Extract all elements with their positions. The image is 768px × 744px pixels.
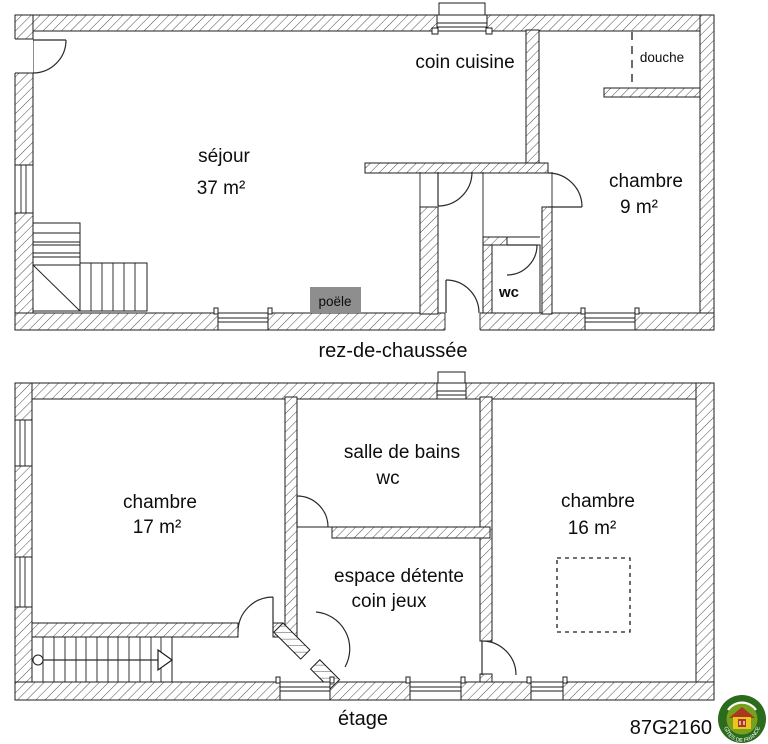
room-area-chambre16: 16 m² (568, 518, 617, 539)
gf-top-wall (15, 15, 714, 31)
gites-de-france-logo: GÎTES DE FRANCE (718, 695, 766, 744)
floorplan-drawing: poële séjour 37 m² coin cuisine chambre … (0, 0, 768, 744)
gf-window-left (15, 165, 33, 213)
floorplan-page: poële séjour 37 m² coin cuisine chambre … (0, 0, 768, 744)
poele-label: poële (318, 294, 351, 309)
gf-stairs (33, 223, 147, 311)
caption-upper-floor: étage (338, 708, 388, 730)
room-area-chambre17: 17 m² (133, 517, 182, 538)
gf-door-chambre9 (548, 173, 582, 207)
room-label-chambre17: chambre (123, 492, 197, 513)
uf-window-left-1 (15, 420, 32, 466)
gf-window-bottom-chambre (581, 308, 639, 330)
uf-door-salle-de-bains (297, 496, 332, 527)
uf-window-bottom-3 (527, 677, 567, 700)
ground-floor-plan: poële séjour 37 m² coin cuisine chambre … (14, 3, 714, 362)
uf-door-chambre16 (482, 641, 516, 675)
gf-door-left-entry (33, 40, 66, 73)
gf-wall-under-cuisine (365, 163, 548, 173)
room-label-salle-de-bains: salle de bains (344, 442, 460, 463)
room-area-sejour: 37 m² (197, 178, 246, 199)
uf-wall-sdb-bottom (332, 527, 490, 538)
gf-wall-hall-chambre (542, 207, 552, 314)
gf-door-sejour-hall (438, 172, 472, 206)
uf-door-diagonal-arc (316, 612, 350, 667)
gf-door-wc (507, 245, 537, 275)
uf-top-wall (15, 383, 714, 399)
uf-wall-chambre17-sdb (285, 397, 297, 637)
gf-window-bottom-sejour (214, 308, 272, 330)
gf-poele-fixture: poële (310, 287, 361, 313)
gf-right-wall (700, 15, 714, 330)
caption-ground-floor: rez-de-chaussée (319, 340, 468, 362)
uf-stairs (32, 637, 172, 682)
room-label-sejour: séjour (198, 146, 250, 167)
gf-wall-cuisine-chambre (526, 30, 539, 164)
uf-bottom-wall (15, 682, 714, 700)
gf-wall-douche (604, 88, 700, 97)
uf-wall-chambre17-bottom (32, 623, 238, 637)
room-area-chambre9: 9 m² (620, 197, 658, 218)
room-label-chambre9: chambre (609, 171, 683, 192)
room-label-douche: douche (640, 50, 684, 65)
gf-wall-sejour-hall (420, 207, 438, 314)
uf-window-left-2 (15, 557, 32, 607)
uf-wall-sdb-chambre16 (480, 397, 492, 641)
uf-door-chambre17 (238, 597, 273, 632)
room-label-wc-gf: wc (498, 284, 519, 301)
gf-wall-wc-top (483, 237, 507, 245)
uf-window-bottom-2 (406, 677, 465, 700)
gf-window-top (432, 3, 492, 34)
room-label-coin-jeux: coin jeux (352, 591, 427, 612)
gf-entry-door-opening (445, 312, 480, 331)
uf-right-wall (696, 383, 714, 700)
room-label-espace-detente: espace détente (334, 566, 464, 587)
logo-house-mark (738, 719, 746, 727)
gf-wc-room-outline (492, 245, 540, 313)
gf-door-entry (446, 280, 479, 313)
gf-wall-wc-left (483, 237, 492, 313)
uf-window-top (437, 372, 466, 399)
uf-dashed-square (557, 558, 630, 632)
upper-floor-plan: chambre 17 m² salle de bains wc chambre … (15, 372, 714, 730)
uf-wall-stub (480, 674, 492, 682)
room-label-chambre16: chambre (561, 491, 635, 512)
gf-left-door-opening (14, 39, 33, 73)
reference-code: 87G2160 (630, 717, 712, 739)
room-label-cuisine: coin cuisine (415, 52, 514, 73)
room-label-wc-uf: wc (375, 468, 399, 489)
